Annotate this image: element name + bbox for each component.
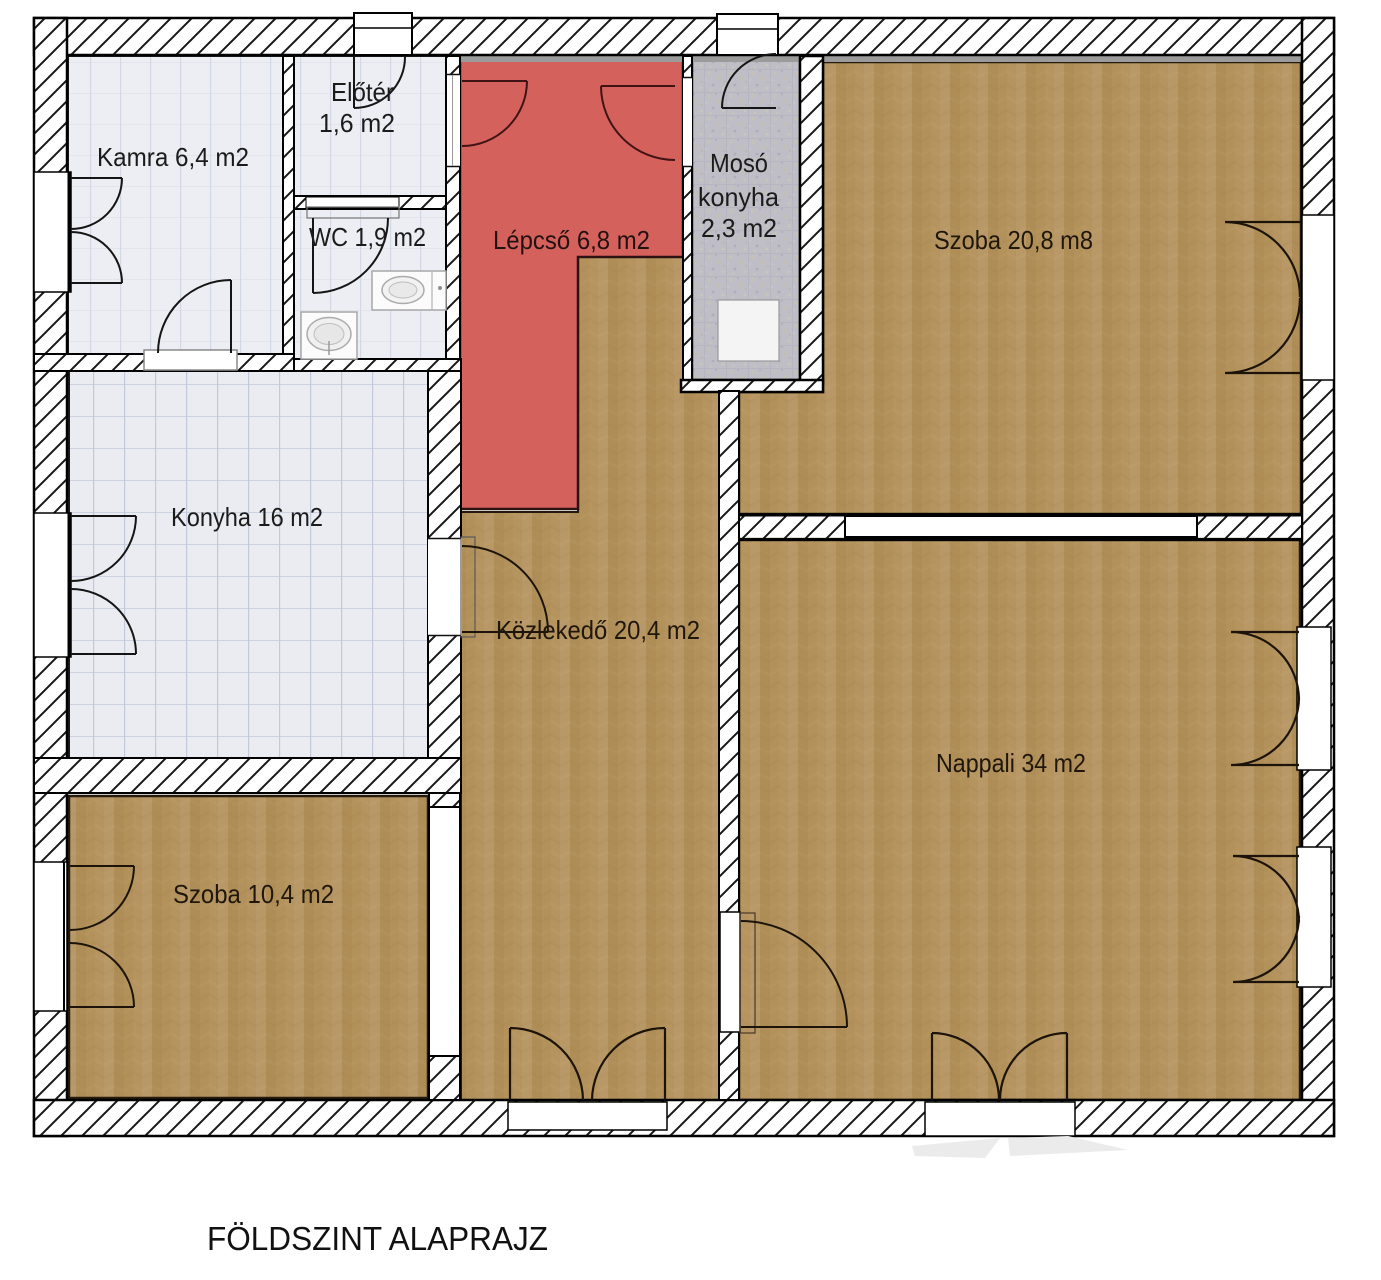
svg-text:Konyha 16 m2: Konyha 16 m2 [171, 502, 323, 532]
svg-text:FÖLDSZINT ALAPRAJZ: FÖLDSZINT ALAPRAJZ [207, 1221, 548, 1258]
svg-text:WC 1,9 m2: WC 1,9 m2 [309, 222, 426, 252]
svg-text:Kamra 6,4 m2: Kamra 6,4 m2 [97, 142, 249, 172]
svg-text:2,3 m2: 2,3 m2 [701, 213, 777, 243]
svg-text:Mosó: Mosó [710, 148, 768, 178]
svg-text:Szoba 20,8 m8: Szoba 20,8 m8 [934, 225, 1093, 255]
svg-text:Szoba 10,4 m2: Szoba 10,4 m2 [173, 879, 334, 909]
svg-text:Lépcső 6,8 m2: Lépcső 6,8 m2 [493, 225, 650, 255]
svg-text:Közlekedő 20,4 m2: Közlekedő 20,4 m2 [496, 615, 700, 645]
svg-text:konyha: konyha [698, 182, 780, 212]
svg-text:Előtér: Előtér [331, 77, 394, 107]
svg-text:Nappali 34 m2: Nappali 34 m2 [936, 748, 1086, 778]
svg-text:1,6 m2: 1,6 m2 [319, 108, 395, 138]
